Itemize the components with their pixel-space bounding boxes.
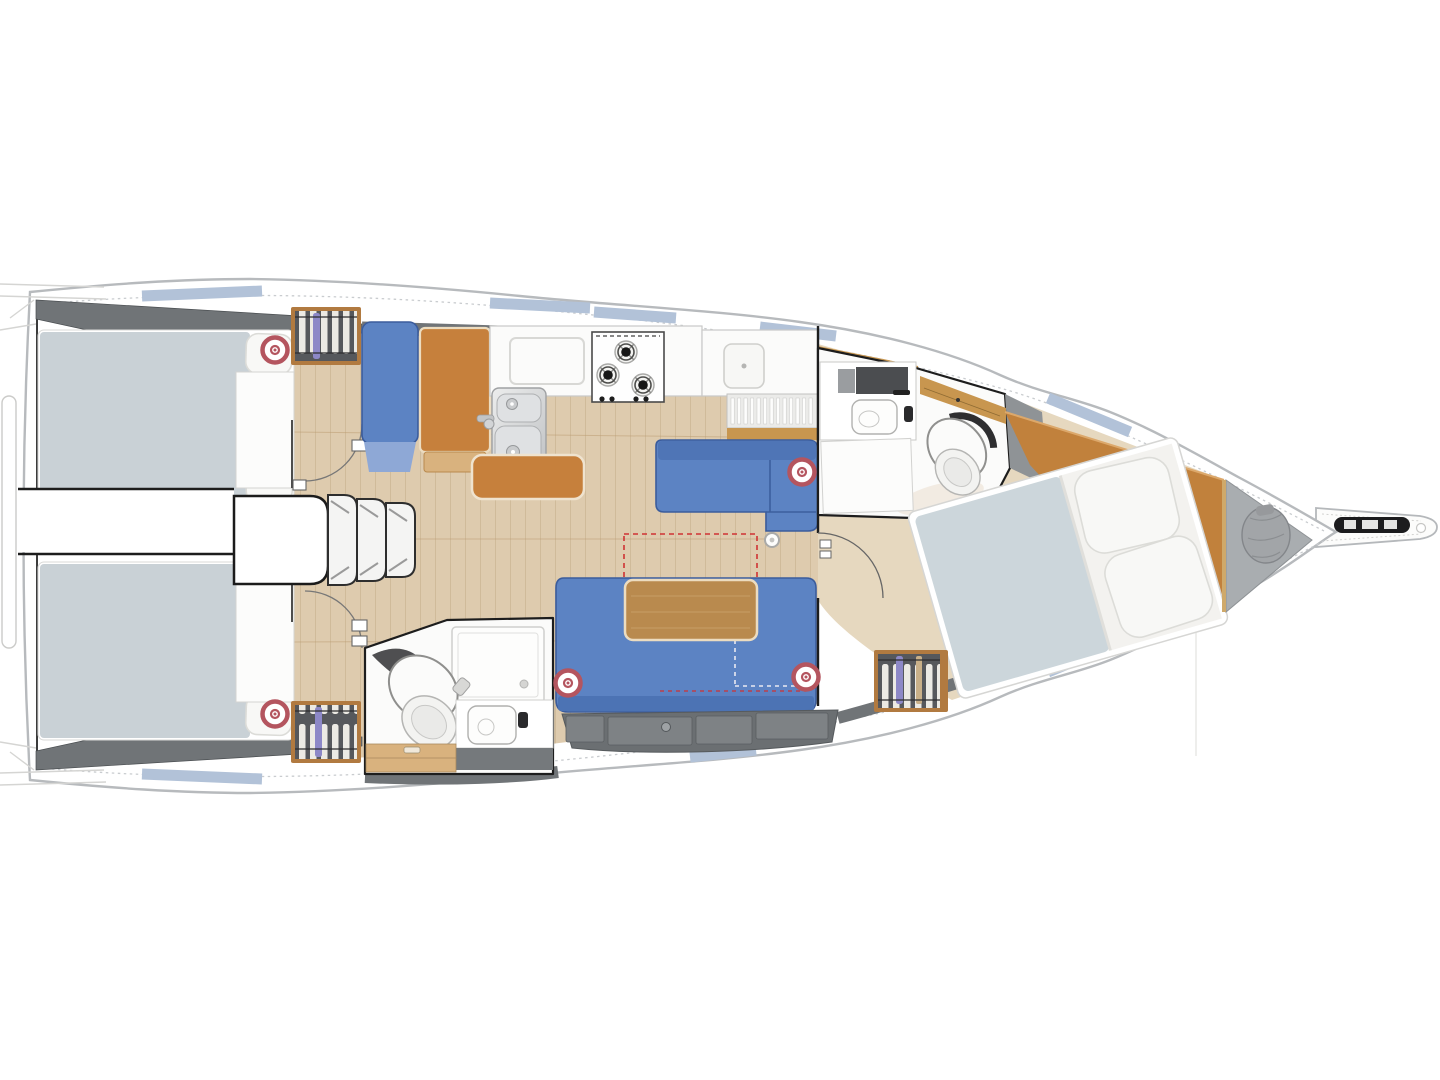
engine-box-corridor (18, 489, 234, 554)
vanity-cabinet (821, 438, 913, 513)
companionway-steps (328, 495, 415, 585)
hull-window (142, 291, 262, 296)
faucet-icon (518, 712, 528, 728)
head-drawers (366, 744, 456, 772)
roller-slot (1362, 520, 1378, 529)
speaker-marker-icon (794, 665, 819, 690)
counter-lid (856, 367, 908, 394)
companionway-landing (234, 496, 328, 584)
door-leaf (352, 620, 367, 631)
clothes-accent (896, 656, 903, 704)
hull-window (142, 774, 262, 779)
salon-table (625, 580, 757, 640)
locker-knob (662, 723, 671, 732)
dish-rack (727, 394, 818, 440)
nav-seat-base (364, 442, 416, 472)
hull-window (490, 303, 590, 308)
galley-island (472, 455, 584, 499)
speaker-marker-icon (556, 671, 581, 696)
port-settee-front (558, 696, 814, 711)
wardrobe-starboard (291, 307, 361, 365)
faucet-icon (904, 406, 913, 422)
corridor-floor (20, 490, 234, 552)
lid-handle (893, 390, 910, 395)
berth-mattress (40, 332, 250, 506)
roller-slot (1384, 520, 1397, 529)
floor-plan-canvas (0, 0, 1440, 1080)
wardrobe-port (291, 701, 361, 763)
faucet-base (484, 419, 494, 429)
door-leaf (820, 551, 831, 558)
nav-seat (362, 322, 418, 444)
burner (597, 364, 619, 386)
starboard-settee-backrest (658, 441, 816, 460)
speaker-marker-icon (263, 338, 288, 363)
vanity-sink (852, 400, 897, 434)
hanging-clothes (295, 705, 357, 759)
clothes-accent (313, 313, 320, 359)
socket-center (770, 538, 775, 543)
bow-fitting (1417, 524, 1426, 533)
fwd-wardrobe (874, 650, 948, 712)
door-jamb (293, 480, 306, 490)
head-vanity (456, 700, 553, 770)
burner (615, 341, 637, 363)
hatch-knob (742, 364, 747, 369)
drawer-handle (404, 747, 420, 753)
bowsprit (1316, 508, 1437, 547)
chart-table (420, 328, 490, 452)
door-leaf (352, 636, 367, 646)
clothes-tan (916, 656, 922, 704)
galley-stove (592, 332, 664, 402)
vanity-sink (468, 706, 516, 744)
under-settee-lockers (562, 710, 838, 752)
speaker-marker-icon (790, 460, 815, 485)
companionway (234, 495, 415, 585)
burner (632, 374, 654, 396)
speaker-marker-icon (263, 702, 288, 727)
boat-plan-svg (0, 0, 1440, 1080)
door-leaf (820, 540, 831, 548)
rack-wood-trim (727, 428, 818, 440)
shelf-handle (956, 398, 960, 402)
berth-mattress (40, 564, 250, 738)
counter-inset (838, 369, 855, 393)
shower (452, 627, 544, 703)
aft-head (352, 618, 553, 774)
doorway-starboard (236, 372, 294, 488)
vanity-front (456, 748, 553, 770)
fwd-vanity (820, 362, 916, 514)
swim-ladder (2, 396, 16, 648)
roller-slot (1344, 520, 1356, 529)
shower-drain (520, 680, 528, 688)
hull-window (594, 312, 676, 318)
